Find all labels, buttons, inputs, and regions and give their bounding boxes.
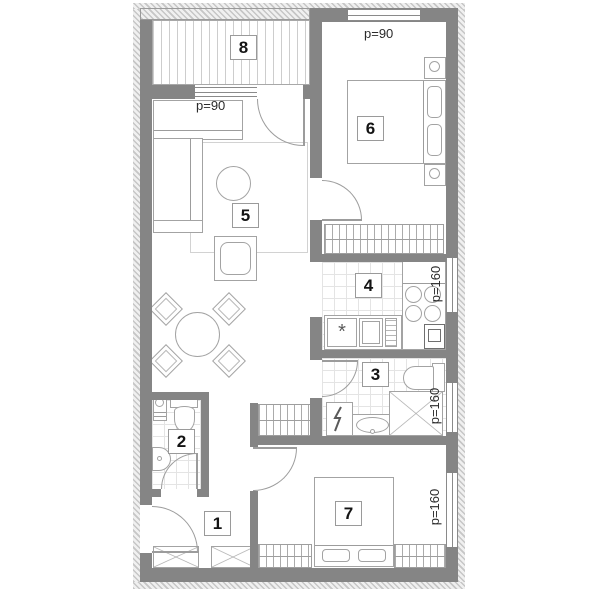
hatch-right: [458, 9, 465, 582]
wall-wc-bottom-right: [197, 489, 209, 497]
pillow: [358, 549, 386, 562]
window-bathroom: [446, 383, 458, 432]
wc-cabinet-line: [154, 412, 166, 413]
wc-cabinet-line: [154, 416, 166, 417]
pillow: [427, 86, 442, 118]
room-label-3: 3: [362, 362, 389, 387]
room7-door-swing: [253, 448, 297, 491]
wall-room6-left: [310, 8, 322, 178]
wall-kitchen-top: [312, 254, 446, 262]
entrance-door-swing: [152, 506, 198, 552]
water-heater: [326, 402, 353, 436]
wall-kitchen-bathroom: [312, 350, 446, 358]
wardrobe-room7-right: [394, 544, 446, 568]
wall-hall-room7-upper: [250, 403, 258, 447]
chair-seat: [155, 298, 178, 321]
wardrobe-rail: [325, 239, 443, 240]
room-label-8: 8: [230, 35, 257, 60]
wc-sink-dot-icon: [157, 456, 162, 461]
wall-balcony-left-segment: [140, 85, 195, 99]
drawer-cabinet: [385, 318, 397, 347]
sofa-armrest: [153, 220, 203, 233]
wall-bathroom-left: [310, 398, 322, 436]
sofa-seat-line: [154, 130, 242, 131]
sofa-left-section: [153, 138, 203, 222]
wall-bathroom-room7: [250, 436, 446, 445]
dining-chair: [212, 344, 246, 378]
room-label-6: 6: [357, 116, 384, 141]
wardrobe-room6: [324, 224, 444, 254]
balcony-door-swing: [257, 99, 303, 146]
room-label-1: 1: [204, 511, 231, 536]
balcony-door-leaf: [303, 99, 305, 146]
wall-wc-bottom-left: [152, 489, 161, 497]
entrance-door-opening: [140, 505, 152, 553]
dining-table: [175, 312, 220, 357]
room6-door-swing: [322, 180, 362, 220]
window-glass-line: [348, 15, 420, 16]
wardrobe-room7-left: [258, 544, 312, 568]
sofa-seat-line2: [190, 139, 191, 221]
window-kitchen: [446, 258, 458, 312]
lamp-icon: [429, 61, 440, 72]
burner-icon: [405, 305, 422, 322]
pillow: [427, 124, 442, 156]
corridor-wardrobe: [258, 404, 312, 436]
dim-label-balcony-window: p=90: [196, 98, 225, 113]
hatch-bottom: [133, 582, 465, 589]
armchair-seat: [220, 242, 251, 275]
burner-icon: [405, 286, 422, 303]
room-label-5: 5: [232, 203, 259, 228]
balcony-railing: [140, 8, 310, 20]
window-room7: [446, 473, 458, 547]
dining-chair: [149, 344, 183, 378]
hall-wardrobe: [211, 546, 255, 568]
dim-label-room6-window: p=90: [364, 26, 393, 41]
pillow: [322, 549, 350, 562]
chair-seat: [218, 298, 241, 321]
room-label-7: 7: [335, 501, 362, 526]
dishwasher-door: [362, 321, 380, 344]
window-balcony: [195, 87, 257, 97]
burner-icon: [424, 305, 441, 322]
chair-seat: [155, 350, 178, 373]
kitchen-sink: *: [327, 318, 357, 347]
lightning-icon: [327, 403, 352, 435]
wardrobe-rail: [395, 556, 445, 557]
bed-room6-headboard-line: [423, 81, 424, 163]
window-glass-line: [195, 92, 257, 93]
dim-label-kitchen-window: p=160: [428, 262, 442, 306]
chair-seat: [218, 350, 241, 373]
oven-door: [428, 329, 441, 342]
window-glass-line: [452, 383, 453, 432]
lamp-icon: [429, 168, 440, 179]
dining-chair: [149, 292, 183, 326]
wardrobe-rail: [259, 420, 311, 421]
window-glass-line: [452, 473, 453, 547]
wall-hall-room7-lower: [250, 491, 258, 568]
wardrobe-rail: [259, 556, 311, 557]
wall-bottom-exterior: [140, 568, 458, 582]
sink-asterisk-icon: *: [338, 321, 346, 344]
floor-plan: *: [0, 0, 600, 600]
faucet-dot-icon: [370, 429, 375, 434]
hatch-left: [133, 9, 140, 582]
window-room6: [348, 9, 420, 21]
wall-wc-right: [201, 392, 209, 497]
window-glass-line: [452, 258, 453, 312]
room-label-2: 2: [168, 429, 195, 454]
coffee-table: [216, 166, 251, 201]
room-label-4: 4: [355, 273, 382, 298]
dining-chair: [212, 292, 246, 326]
bed-room7-headboard-line: [315, 545, 393, 546]
dim-label-room7-window: p=160: [427, 485, 441, 529]
dim-label-bathroom-window: p=160: [427, 384, 441, 428]
